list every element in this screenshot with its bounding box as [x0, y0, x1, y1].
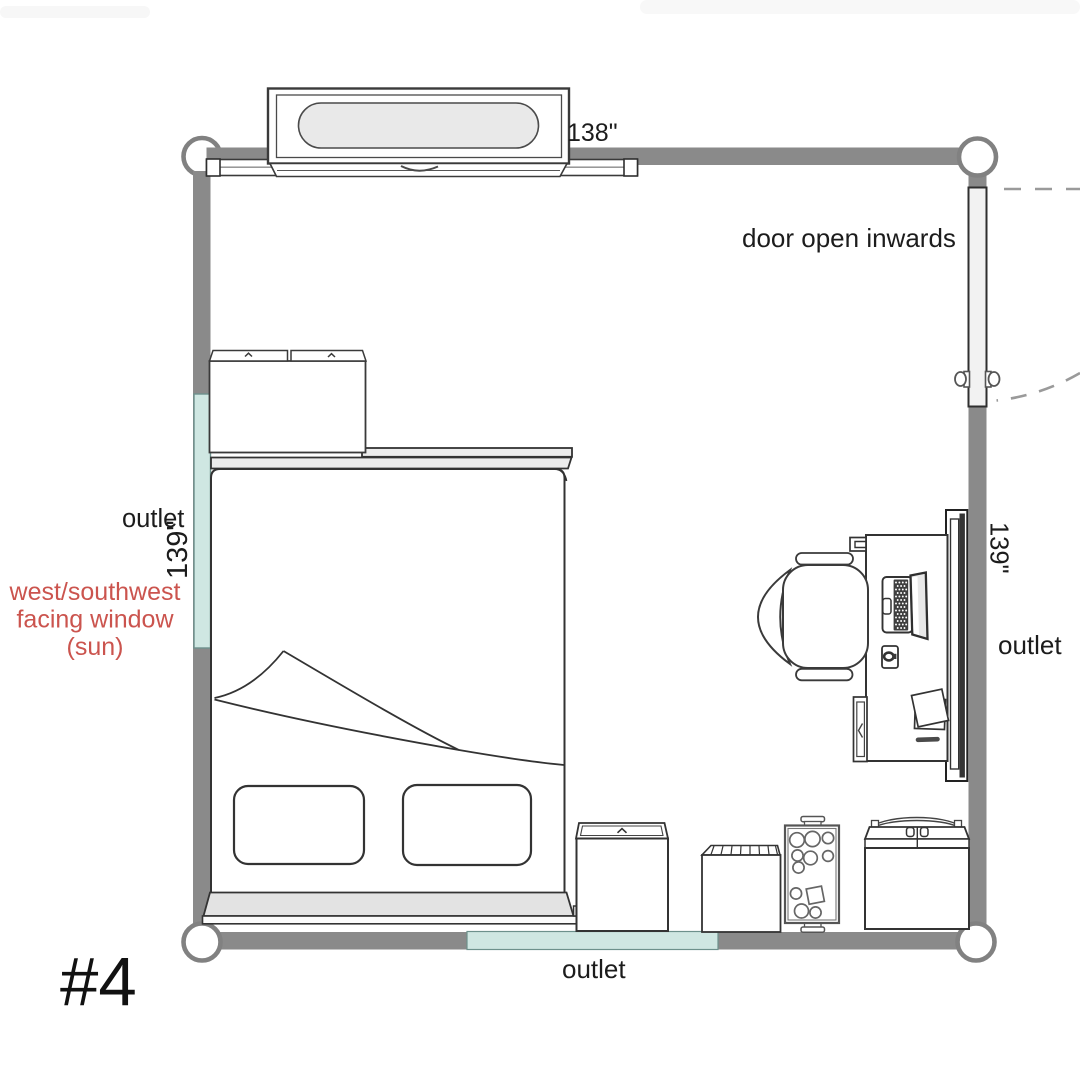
svg-text:#4: #4	[60, 943, 137, 1020]
svg-text:outlet: outlet	[998, 630, 1062, 660]
svg-text:west/southwest: west/southwest	[9, 578, 181, 606]
svg-text:door open inwards: door open inwards	[742, 223, 956, 253]
svg-text:139": 139"	[162, 520, 194, 579]
svg-text:outlet: outlet	[562, 954, 626, 984]
svg-text:139": 139"	[985, 522, 1013, 574]
svg-text:facing window: facing window	[16, 606, 174, 634]
svg-text:138": 138"	[567, 119, 618, 147]
svg-text:(sun): (sun)	[67, 633, 124, 661]
